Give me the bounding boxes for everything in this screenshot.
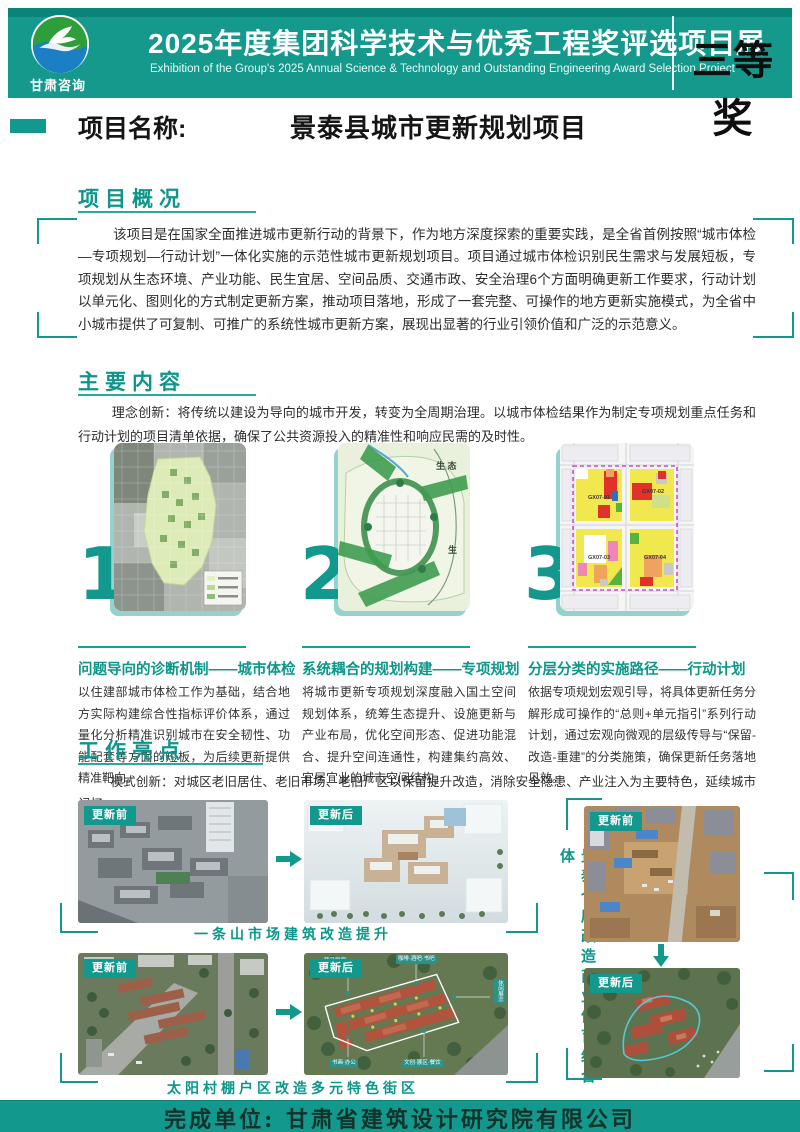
map-legend [204, 571, 242, 605]
item1-divider [78, 646, 246, 648]
row1-before-tag: 更新前 [84, 806, 136, 825]
special-plan-map: 生 态 生 [338, 443, 470, 611]
footer-completed-by: 完成单位: 甘肃省建筑设计研究院有限公司 [0, 1102, 800, 1132]
urban-exam-map-graphic [114, 443, 246, 611]
row2-arrow-right-icon [276, 1003, 302, 1021]
overview-bracket-br [753, 312, 794, 338]
row1-arrow-right-icon [276, 850, 302, 868]
poster-root: 甘肃咨询 2025年度集团科学技术与优秀工程奖评选项目展 Exhibition … [0, 0, 800, 1132]
map3-block-label-1: GX07-01 [588, 495, 610, 501]
project-label-marker [10, 119, 46, 133]
map2-label-ecology: 生 态 [436, 460, 457, 471]
map3-block-label-4: GX07-04 [644, 555, 667, 561]
row1-after-tag: 更新后 [310, 806, 362, 825]
overview-heading-underline [78, 211, 256, 213]
map2-label-sheng: 生 [448, 544, 457, 555]
project-name: 景泰县城市更新规划项目 [290, 108, 587, 145]
urban-physical-exam-map [114, 443, 246, 611]
item1-title: 问题导向的诊断机制——城市体检 [78, 658, 300, 679]
side-arrow-down-icon [652, 944, 670, 968]
row2-caption: 太阳村棚户区改造多元特色街区 [78, 1078, 508, 1098]
highlights-heading: 工作亮点 [78, 735, 186, 765]
side-bracket-br [764, 1044, 794, 1072]
main-content-heading-underline [78, 394, 256, 396]
item2-title: 系统耦合的规划构建——专项规划 [302, 658, 524, 679]
row1-bracket-br [506, 903, 538, 933]
project-label: 项目名称: [78, 109, 186, 145]
action-plan-map: GX07-01 GX07-02 GX07-03 GX07-04 [560, 443, 694, 611]
side-after-tag: 更新后 [590, 974, 642, 993]
overview-heading: 项目概况 [78, 183, 186, 213]
callout-tag-5: 文创·展区·餐饮 [402, 1059, 443, 1068]
overview-bracket-tr [753, 218, 794, 244]
side-bracket-tr [764, 872, 794, 900]
company-logo-icon [30, 14, 90, 74]
callout-tag-2: 咖啡·酒吧·书吧 [396, 955, 437, 964]
item2-divider [302, 646, 470, 648]
callout-tag-3: 休闲展示 [494, 979, 505, 1003]
row2-after-tag: 更新后 [310, 959, 362, 978]
row1-caption: 一条山市场建筑改造提升 [78, 924, 508, 944]
item3-title: 分层分类的实施路径——行动计划 [528, 658, 758, 679]
overview-bracket-bl [37, 312, 77, 338]
main-content-intro: 理念创新：将传统以建设为导向的城市开发，转变为全周期治理。以城市体检结果作为制定… [78, 401, 756, 449]
row2-bracket-br [506, 1053, 538, 1083]
main-content-heading: 主要内容 [78, 366, 186, 396]
overview-bracket-tl [37, 218, 77, 244]
special-plan-map-graphic: 生 态 生 [338, 443, 470, 611]
map3-block-label-3: GX07-03 [588, 555, 610, 561]
header-band: 甘肃咨询 2025年度集团科学技术与优秀工程奖评选项目展 Exhibition … [8, 8, 792, 98]
side-before-tag: 更新前 [590, 812, 642, 831]
overview-body: 该项目是在国家全面推进城市更新行动的背景下，作为地方深度探索的重要实践，是全省首… [78, 224, 756, 336]
item3-divider [528, 646, 696, 648]
highlights-heading-underline [78, 763, 263, 765]
map3-block-label-2: GX07-02 [642, 489, 664, 495]
company-logo-caption: 甘肃咨询 [14, 75, 102, 94]
callout-tag-4: 书画·办公 [330, 1059, 358, 1068]
poster-subtitle: Exhibition of the Group's 2025 Annual Sc… [150, 63, 735, 75]
side-bracket-bl [566, 1048, 602, 1080]
action-plan-map-graphic: GX07-01 GX07-02 GX07-03 GX07-04 [560, 443, 694, 611]
award-badge: 三等奖 [674, 28, 792, 144]
row2-before-tag: 更新前 [84, 959, 136, 978]
